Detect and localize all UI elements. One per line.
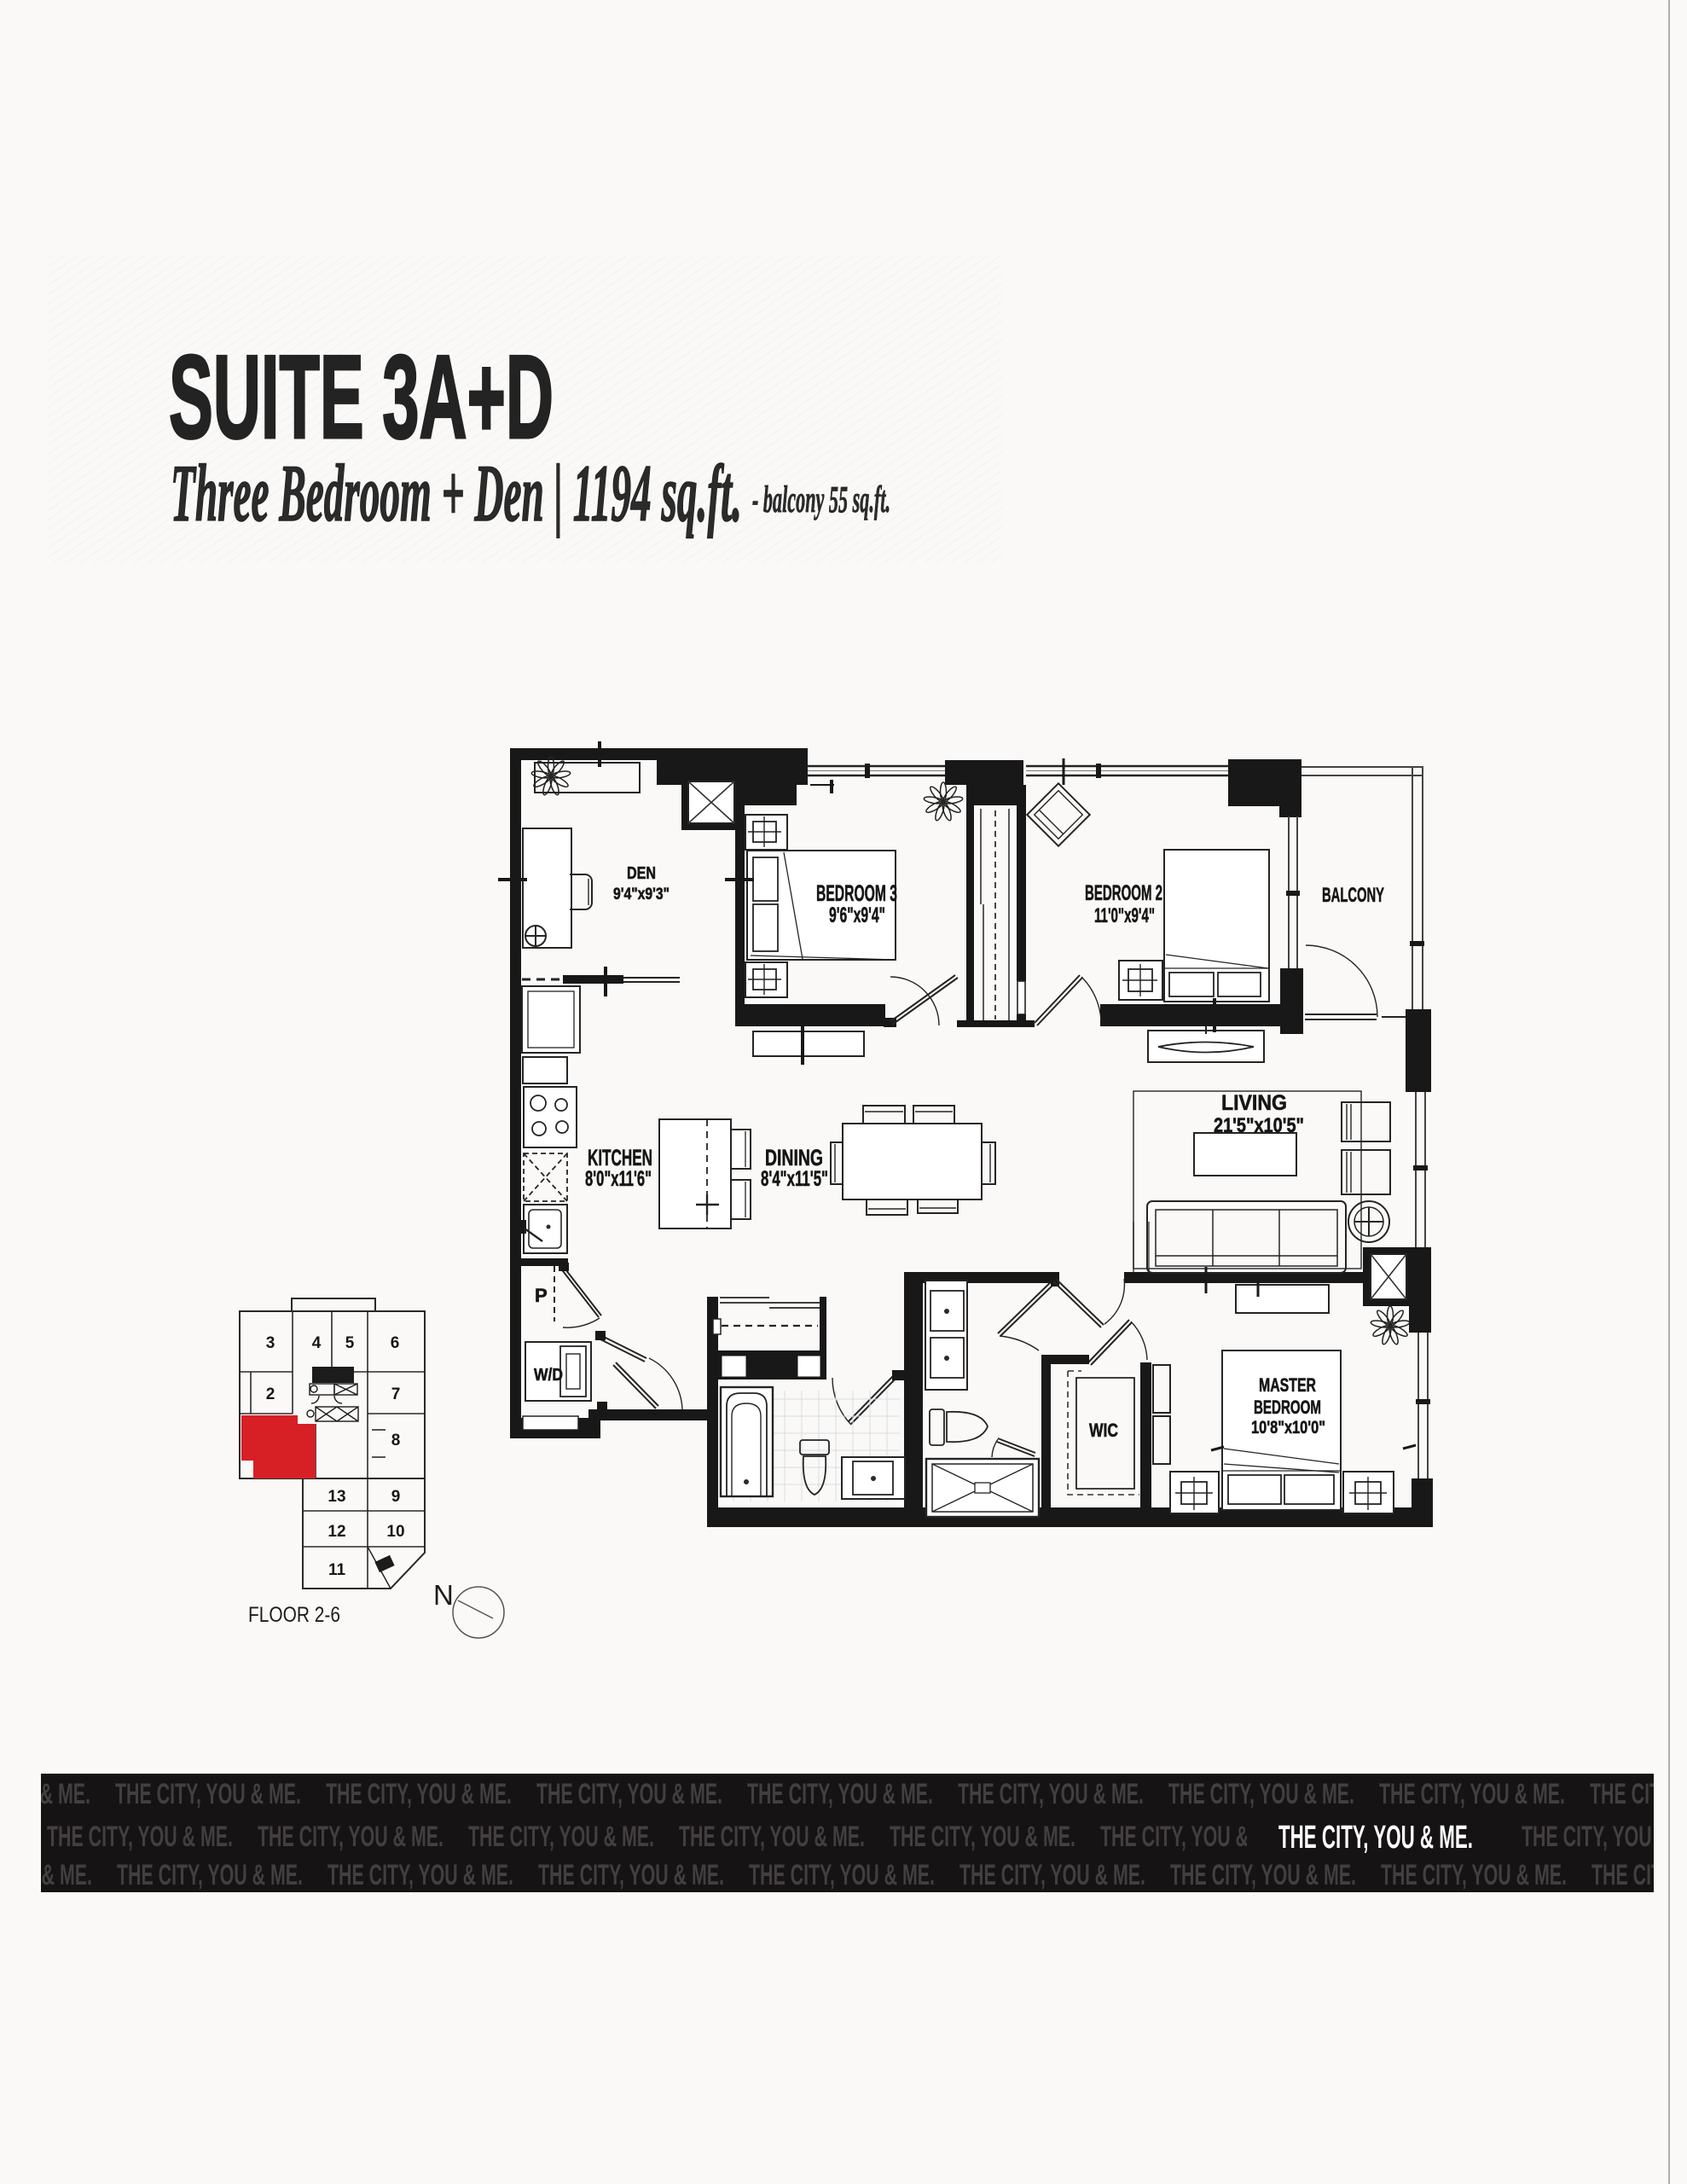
svg-text:- balcony 55 sq.ft.: - balcony 55 sq.ft. bbox=[752, 479, 890, 520]
svg-text:THE CITY, YOU & ME.: THE CITY, YOU & ME. bbox=[536, 1778, 722, 1810]
svg-text:THE CITY, YOU & ME.: THE CITY, YOU & ME. bbox=[747, 1778, 933, 1810]
svg-text:9: 9 bbox=[391, 1488, 401, 1506]
svg-text:THE CITY, YOU & ME.: THE CITY, YOU & ME. bbox=[468, 1821, 654, 1853]
svg-text:THE CITY, YOU & ME.: THE CITY, YOU & ME. bbox=[47, 1821, 233, 1853]
svg-text:BALCONY: BALCONY bbox=[1322, 884, 1384, 907]
svg-text:THE CITY, YOU & ME.: THE CITY, YOU & ME. bbox=[1170, 1859, 1356, 1891]
svg-text:THE CITY, YOU & ME.: THE CITY, YOU & ME. bbox=[1381, 1859, 1567, 1891]
svg-text:11'0"x9'4": 11'0"x9'4" bbox=[1094, 904, 1155, 927]
svg-text:11: 11 bbox=[328, 1561, 346, 1579]
svg-text:W/D: W/D bbox=[534, 1366, 563, 1385]
svg-text:WIC: WIC bbox=[1089, 1420, 1118, 1441]
svg-text:9'6"x9'4": 9'6"x9'4" bbox=[829, 903, 885, 927]
svg-text:THE CITY, YOU & ME.: THE CITY, YOU & ME. bbox=[1168, 1778, 1354, 1810]
svg-text:5: 5 bbox=[345, 1334, 355, 1352]
svg-text:FLOOR 2-6: FLOOR 2-6 bbox=[248, 1603, 340, 1627]
svg-text:N: N bbox=[433, 1579, 454, 1611]
svg-text:LIVING: LIVING bbox=[1221, 1091, 1287, 1115]
svg-text:21'5"x10'5": 21'5"x10'5" bbox=[1214, 1114, 1304, 1137]
svg-text:3: 3 bbox=[266, 1334, 275, 1352]
svg-text:THE CITY, YOU & ME.: THE CITY, YOU & ME. bbox=[1278, 1820, 1473, 1856]
svg-text:THE CITY, YOU & ME.: THE CITY, YOU & ME. bbox=[749, 1859, 935, 1891]
svg-text:THE CITY, YOU & ME.: THE CITY, YOU & ME. bbox=[890, 1821, 1075, 1853]
svg-text:9'4"x9'3": 9'4"x9'3" bbox=[613, 886, 670, 903]
svg-text:THE CITY, YOU & ME.: THE CITY, YOU & ME. bbox=[115, 1778, 301, 1810]
svg-text:THE CITY, YOU & ME.: THE CITY, YOU & ME. bbox=[1379, 1778, 1565, 1810]
svg-text:2: 2 bbox=[266, 1385, 275, 1403]
svg-text:10'8"x10'0": 10'8"x10'0" bbox=[1251, 1418, 1325, 1438]
svg-text:13: 13 bbox=[328, 1488, 345, 1506]
svg-text:P: P bbox=[535, 1285, 548, 1306]
svg-text:BEDROOM: BEDROOM bbox=[1254, 1397, 1321, 1418]
svg-text:12: 12 bbox=[328, 1523, 345, 1541]
svg-text:MASTER: MASTER bbox=[1259, 1374, 1316, 1396]
svg-text:THE CITY, YOU & ME.: THE CITY, YOU & ME. bbox=[959, 1859, 1145, 1891]
svg-text:6: 6 bbox=[391, 1334, 400, 1352]
svg-text:DEN: DEN bbox=[627, 864, 656, 883]
svg-text:THE CITY, YOU & ME.: THE CITY, YOU & ME. bbox=[679, 1821, 865, 1853]
svg-text:THE CITY, YOU & ME.: THE CITY, YOU & ME. bbox=[958, 1778, 1144, 1810]
svg-text:THE CITY, YOU & ME.: THE CITY, YOU & ME. bbox=[326, 1778, 512, 1810]
svg-text:SUITE 3A+D: SUITE 3A+D bbox=[169, 331, 554, 463]
svg-text:7: 7 bbox=[391, 1385, 401, 1403]
svg-text:THE CITY, YOU & ME.: THE CITY, YOU & ME. bbox=[538, 1859, 724, 1891]
svg-text:10: 10 bbox=[386, 1523, 404, 1541]
svg-text:THE CITY, YOU & ME.: THE CITY, YOU & ME. bbox=[258, 1821, 443, 1853]
svg-text:Three Bedroom + Den | 1194 sq.: Three Bedroom + Den | 1194 sq.ft. bbox=[171, 448, 742, 538]
svg-text:BEDROOM 2: BEDROOM 2 bbox=[1085, 881, 1162, 905]
svg-text:BEDROOM 3: BEDROOM 3 bbox=[816, 880, 897, 906]
svg-text:THE CITY, YOU & ME.: THE CITY, YOU & ME. bbox=[117, 1859, 303, 1891]
svg-text:8: 8 bbox=[391, 1432, 401, 1449]
svg-text:8'4"x11'5": 8'4"x11'5" bbox=[761, 1167, 828, 1191]
svg-text:8'0"x11'6": 8'0"x11'6" bbox=[585, 1167, 652, 1191]
svg-text:4: 4 bbox=[312, 1334, 322, 1352]
svg-text:THE CITY, YOU & ME.: THE CITY, YOU & ME. bbox=[328, 1859, 513, 1891]
